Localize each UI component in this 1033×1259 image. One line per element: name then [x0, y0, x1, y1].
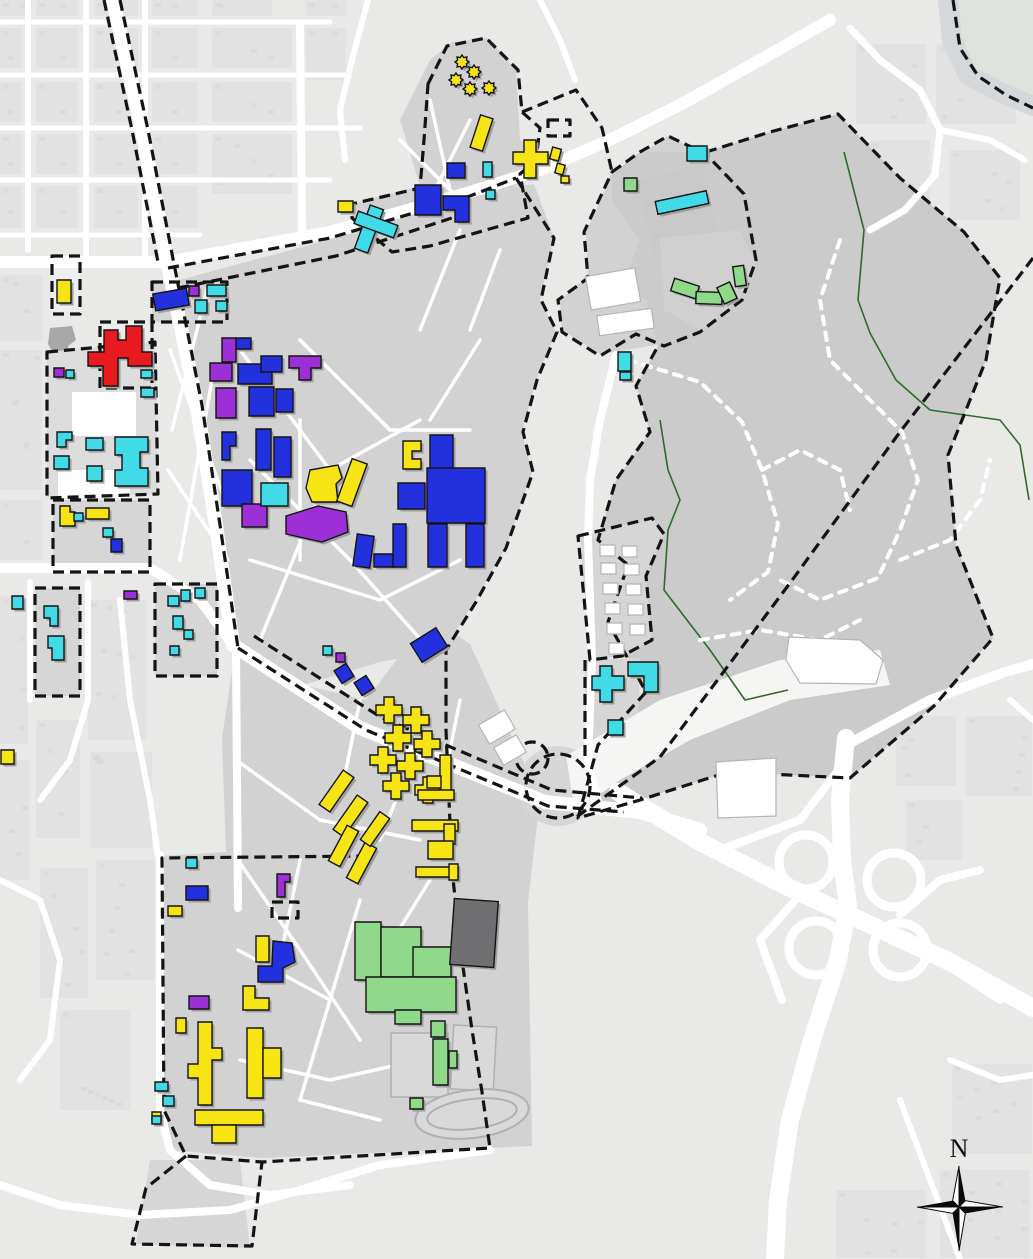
building-cyan — [483, 162, 492, 177]
building-green — [431, 1021, 445, 1037]
building-green — [355, 922, 381, 980]
building-yellow — [482, 81, 496, 95]
building-yellow — [427, 776, 441, 788]
building-cyan — [86, 438, 103, 450]
building-purple — [124, 591, 137, 599]
campus-map-svg — [0, 0, 1033, 1259]
building-cyan — [687, 146, 707, 161]
building-yellow — [195, 1110, 263, 1125]
building-green — [413, 947, 451, 977]
building-blue — [393, 524, 406, 567]
building-cyan — [181, 590, 190, 601]
building-purple — [222, 338, 236, 362]
building-cyan — [103, 528, 113, 537]
building-cyan — [618, 352, 631, 371]
building-green — [624, 178, 637, 191]
building-blue — [374, 554, 394, 567]
building-green — [449, 1051, 457, 1068]
building-green — [366, 977, 456, 1012]
building-yellow — [86, 508, 109, 519]
building-blue — [249, 387, 274, 416]
building-cyan — [141, 370, 152, 378]
building-blue — [427, 468, 485, 523]
building-yellow — [561, 176, 569, 183]
building-green — [395, 1010, 421, 1024]
building-cyan — [12, 596, 23, 609]
building-yellow — [256, 936, 269, 962]
building-yellow — [247, 1028, 263, 1098]
building-blue — [276, 389, 293, 412]
building-cyan — [608, 720, 623, 735]
building-green — [733, 265, 747, 286]
building-yellow — [176, 1018, 186, 1033]
building-cyan — [186, 858, 197, 868]
building-blue — [274, 437, 291, 477]
building-purple — [216, 388, 236, 418]
building-cyan — [261, 483, 288, 506]
building-yellow — [428, 841, 453, 859]
building-cyan — [173, 616, 183, 629]
building-yellow — [57, 280, 71, 303]
building-cyan — [74, 513, 83, 521]
building-cyan — [620, 372, 631, 380]
building-yellow — [1, 750, 14, 764]
building-purple — [54, 368, 64, 377]
building-blue — [415, 185, 441, 215]
building-purple — [189, 286, 199, 296]
building-yellow — [467, 65, 481, 79]
building-yellow — [263, 1048, 281, 1078]
building-green — [410, 1098, 423, 1109]
compass-north-label: N — [944, 1134, 974, 1164]
building-cyan — [216, 301, 227, 311]
building-purple — [189, 996, 209, 1009]
building-cyan — [163, 1096, 174, 1106]
building-blue — [236, 338, 251, 349]
building-cyan — [486, 190, 495, 199]
building-blue — [186, 886, 208, 900]
building-purple — [242, 504, 267, 527]
building-blue — [447, 163, 465, 178]
building-blue — [111, 539, 122, 552]
building-cyan — [184, 630, 193, 639]
building-cyan — [54, 456, 69, 469]
building-cyan — [87, 466, 102, 481]
building-yellow — [168, 906, 182, 916]
building-blue — [353, 534, 374, 568]
building-cyan — [207, 285, 226, 296]
campus-map-page: N — [0, 0, 1033, 1259]
building-purple — [336, 653, 345, 662]
building-yellow — [418, 790, 454, 800]
campus-map — [0, 0, 1033, 1259]
building-blue — [428, 524, 447, 567]
building-yellow — [306, 465, 342, 502]
building-cyan — [152, 1116, 161, 1124]
building-cyan — [66, 370, 74, 378]
building-garage — [450, 899, 498, 968]
building-cyan — [195, 588, 205, 598]
building-blue — [466, 524, 484, 567]
building-cyan — [170, 646, 179, 655]
building-yellow — [449, 864, 458, 880]
building-cyan — [195, 300, 207, 313]
building-blue — [398, 483, 425, 509]
building-yellow — [338, 201, 353, 212]
building-yellow — [463, 82, 477, 96]
building-cyan — [141, 388, 154, 397]
building-cyan — [168, 596, 179, 606]
building-yellow — [555, 163, 565, 175]
building-green — [433, 1039, 448, 1085]
building-cyan — [155, 1082, 168, 1091]
building-yellow — [212, 1125, 236, 1143]
building-yellow — [449, 73, 463, 87]
building-cyan — [323, 646, 332, 655]
building-green — [696, 292, 722, 305]
building-yellow — [455, 55, 469, 69]
building-blue — [261, 356, 282, 372]
building-purple — [210, 363, 232, 381]
building-blue — [222, 470, 252, 506]
building-blue — [256, 429, 271, 470]
